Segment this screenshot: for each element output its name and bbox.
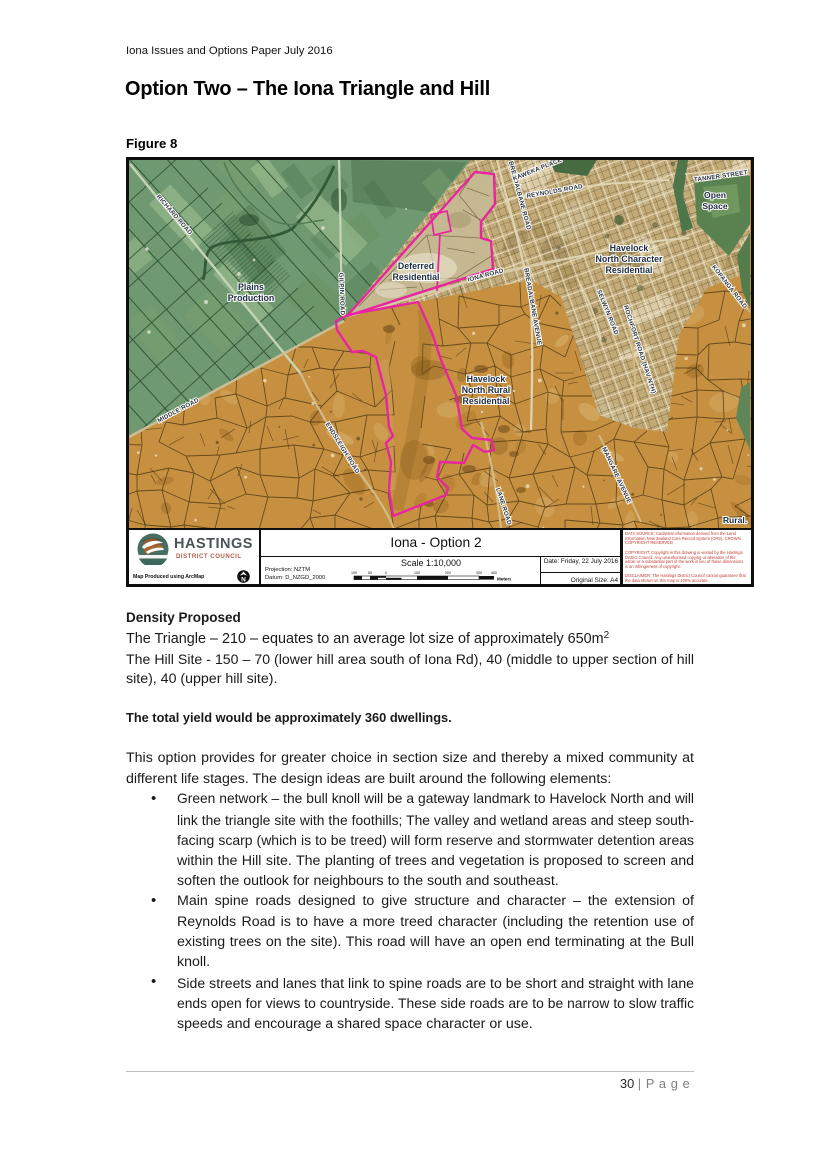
svg-text:Plains: Plains xyxy=(238,282,264,292)
svg-text:Residential: Residential xyxy=(463,396,510,406)
svg-text:50: 50 xyxy=(368,571,372,575)
svg-text:100: 100 xyxy=(351,571,357,575)
svg-text:Deferred: Deferred xyxy=(398,261,434,271)
svg-text:North Rural: North Rural xyxy=(462,385,510,395)
svg-text:Open: Open xyxy=(704,190,726,200)
svg-text:North Character: North Character xyxy=(596,254,664,264)
svg-text:0: 0 xyxy=(385,571,387,575)
svg-text:400: 400 xyxy=(491,571,497,575)
svg-text:Havelock: Havelock xyxy=(467,374,506,384)
svg-text:Residential: Residential xyxy=(606,265,653,275)
svg-text:100: 100 xyxy=(414,571,420,575)
svg-text:Meters: Meters xyxy=(497,577,511,582)
svg-text:Rural.: Rural. xyxy=(723,515,747,525)
svg-text:Residential: Residential xyxy=(393,272,440,282)
svg-text:Production: Production xyxy=(228,293,274,303)
svg-text:N: N xyxy=(241,576,246,583)
svg-text:200: 200 xyxy=(445,571,451,575)
svg-text:Space: Space xyxy=(702,201,728,211)
svg-text:Havelock: Havelock xyxy=(610,243,649,253)
svg-text:300: 300 xyxy=(476,571,482,575)
